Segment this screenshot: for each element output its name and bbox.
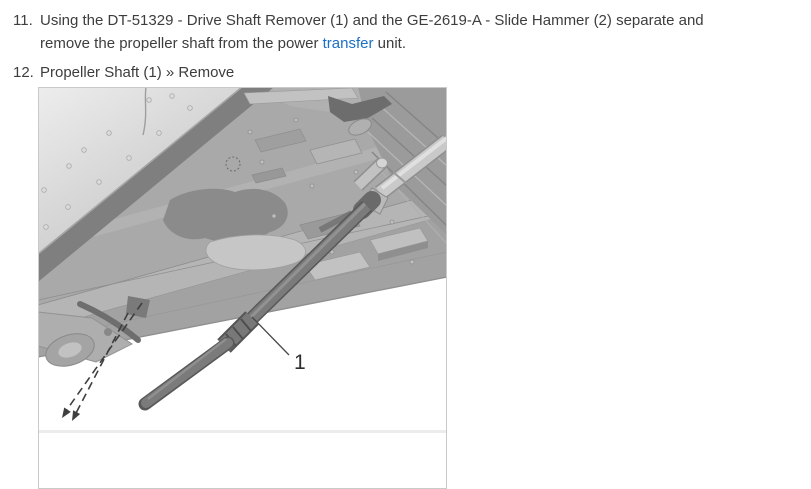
list-item-12-text: Propeller Shaft (1) » Remove <box>40 61 798 84</box>
transfer-link[interactable]: transfer <box>323 35 374 52</box>
manual-page: 11. Using the DT-51329 - Drive Shaft Rem… <box>0 0 811 433</box>
list-item-11-text: Using the DT-51329 - Drive Shaft Remover… <box>40 9 798 55</box>
text-after-link: unit. <box>374 35 407 52</box>
list-item-12: 12. Propeller Shaft (1) » Remove <box>0 61 811 84</box>
list-item-11-number: 11. <box>13 9 40 32</box>
underbody-illustration: 1 <box>39 88 446 486</box>
callout-1: 1 <box>252 317 306 374</box>
text-before-link: remove the propeller shaft from the powe… <box>40 35 323 52</box>
callout-leader-line <box>252 317 289 355</box>
underbody-figure: 1 <box>38 87 447 489</box>
list-item-12-number: 12. <box>13 61 40 84</box>
list-item-11: 11. Using the DT-51329 - Drive Shaft Rem… <box>0 9 811 55</box>
instruction-line-2: remove the propeller shaft from the powe… <box>40 32 798 55</box>
callout-1-label: 1 <box>294 351 306 374</box>
instruction-list: 11. Using the DT-51329 - Drive Shaft Rem… <box>0 0 811 84</box>
instruction-line-1: Using the DT-51329 - Drive Shaft Remover… <box>40 9 798 32</box>
